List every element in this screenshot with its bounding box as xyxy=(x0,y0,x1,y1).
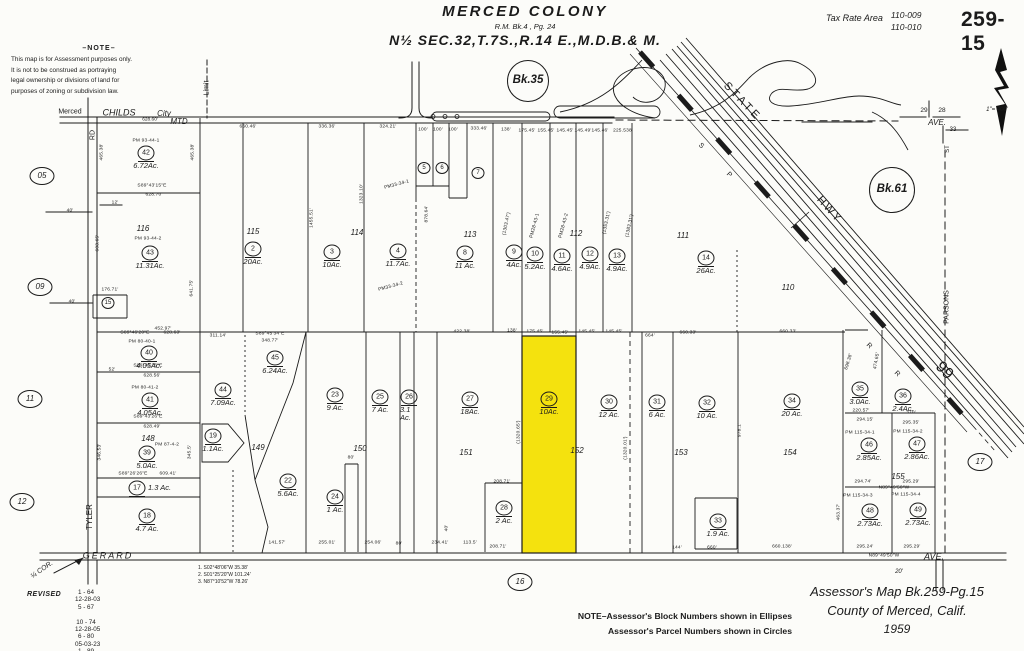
dimension-label: (1383.31') xyxy=(626,214,636,238)
gerard-ave-label: GERARD xyxy=(83,552,134,561)
legend-note-line: NOTE–Assessor's Block Numbers shown in E… xyxy=(400,609,792,624)
dimension-label: 348.77' xyxy=(262,340,279,345)
dimension-label: 346.53' xyxy=(99,444,104,461)
dimension-label: (1320.01') xyxy=(625,436,630,459)
bearing-table-row: 2. S01°25'20"W 101.24' xyxy=(198,572,251,579)
map-title: MERCED COLONY xyxy=(389,3,661,20)
dimension-label: 295.24' xyxy=(857,546,874,551)
tyler-rd-label: TYLER xyxy=(86,504,94,530)
parcel-acreage-23: 9 Ac. xyxy=(327,404,344,412)
parcel-number-40: 40 xyxy=(141,346,158,361)
dimension-label: 628.63' xyxy=(164,332,181,337)
parcel-acreage-17: 1.3 Ac. xyxy=(148,484,171,492)
dimension-label: 295.35' xyxy=(903,422,920,427)
dimension-label: PM33-34-2 xyxy=(378,282,404,293)
city-limit-label: Limit xyxy=(204,81,211,96)
bearing-table-row: 1. S02°48'06"W 35.38' xyxy=(198,565,251,572)
bearing-table-row: 3. N87°10'52"W 78.26' xyxy=(198,579,251,586)
parcel-number-34: 34 xyxy=(784,394,801,409)
dimension-label: PM 115-34-2 xyxy=(893,431,923,436)
dimension-label: S89°45'34"E xyxy=(255,333,284,338)
parcel-number-15: 15 xyxy=(102,297,115,309)
dimension-label: 145.49' xyxy=(575,130,592,135)
parcel-acreage-30: 12 Ac. xyxy=(599,411,620,419)
block-number-label: 113 xyxy=(464,231,477,239)
railroad-letter: S xyxy=(697,142,705,150)
parcel-number-44: 44 xyxy=(215,383,232,398)
block-number-label: 149 xyxy=(251,444,264,452)
dimension-label: 664' xyxy=(645,335,655,340)
block-number-label: 152 xyxy=(570,447,583,455)
dimension-label: 138' xyxy=(501,129,511,134)
assessor-stamp: Assessor's Map Bk.259-Pg.15 County of Me… xyxy=(772,582,1022,638)
parcel-number-29: 29 xyxy=(541,392,558,407)
dimension-label: 234.41' xyxy=(432,542,449,547)
parcel-divider-line xyxy=(129,496,145,497)
block-ellipse-11: 11 xyxy=(18,390,43,408)
parcel-number-32: 32 xyxy=(699,396,716,411)
adjacent-book-ref: Bk.61 xyxy=(869,167,915,213)
parcel-acreage-22: 5.6Ac. xyxy=(277,490,298,498)
revision-number: 1 - 64 xyxy=(69,589,103,596)
mtd-label: MTD xyxy=(170,118,187,126)
dimension-label: 138' xyxy=(507,330,517,335)
parcel-number-2: 2 xyxy=(245,242,262,257)
parcel-acreage-45: 6.24Ac. xyxy=(262,367,287,375)
block-ellipse-17: 17 xyxy=(968,453,993,471)
dimension-label: 208.71' xyxy=(490,546,507,551)
dimension-label: 176.71' xyxy=(102,289,119,294)
section-number-label: 29 xyxy=(920,108,927,115)
parcel-number-5: 5 xyxy=(418,162,431,174)
parcel-acreage-24: 1 Ac. xyxy=(327,506,344,514)
dimension-label: 1323.10' xyxy=(361,184,366,204)
parcel-number-31: 31 xyxy=(649,395,666,410)
parcel-acreage-43: 11.31Ac. xyxy=(135,262,164,270)
dimension-label: 311.14' xyxy=(210,335,227,340)
scale-label: 1"= 400' xyxy=(986,107,1008,113)
dimension-label: 145.45' xyxy=(557,130,574,135)
dimension-label: 100' xyxy=(433,129,443,134)
parcel-acreage-29: 10Ac. xyxy=(539,408,558,416)
railroad-letter: R xyxy=(865,342,874,351)
parcel-acreage-28: 2 Ac. xyxy=(496,517,513,525)
block-ellipse-12: 12 xyxy=(10,493,35,511)
legend-note: NOTE–Assessor's Block Numbers shown in E… xyxy=(400,609,792,638)
dimension-label: 465.38' xyxy=(101,144,106,161)
dimension-label: 208.71' xyxy=(494,481,511,486)
dimension-label: 465.38' xyxy=(192,144,197,161)
dimension-label: 145.45' xyxy=(606,331,623,336)
dimension-label: PM 115-34-3 xyxy=(843,495,873,500)
dimension-label: 660.138' xyxy=(772,546,792,551)
dimension-label: PM 93-44-1 xyxy=(132,140,159,145)
dimension-label: 336.36' xyxy=(319,126,336,131)
parcel-number-14: 14 xyxy=(698,251,715,266)
dimension-label: 609.41' xyxy=(160,473,177,478)
childs-ave-label: CHILDS xyxy=(102,109,135,118)
assessor-stamp-line: County of Merced, Calif. xyxy=(772,601,1022,620)
st-label: ST xyxy=(945,145,951,153)
dim-20ft: 20' xyxy=(895,569,903,575)
parcel-acreage-12: 4.9Ac. xyxy=(579,263,600,271)
revision-date: 12-28-03 xyxy=(75,596,119,603)
parcel-acreage-19: 1.1Ac. xyxy=(202,445,223,453)
revision-entry: 1 - 6412-28-03 xyxy=(69,589,119,604)
dimension-label: 660' xyxy=(707,547,717,552)
parcel-number-43: 43 xyxy=(142,246,159,261)
revision-entry: 5 - 67 xyxy=(69,604,119,619)
map-title-block: MERCED COLONY R.M. Bk.4 , Pg. 24 N½ SEC.… xyxy=(389,3,661,48)
parcel-number-13: 13 xyxy=(609,249,626,264)
dimension-label: (1303.47') xyxy=(503,212,513,236)
parcel-acreage-31: 6 Ac. xyxy=(649,411,666,419)
dimension-label: (1320.65') xyxy=(518,420,523,443)
parcel-acreage-9: 4Ac. xyxy=(506,261,521,269)
dimension-label: PM 115-34-1 xyxy=(845,432,875,437)
dimension-label: 474.65' xyxy=(874,352,882,370)
assessment-note-line: legal ownership or divisions of land for xyxy=(11,76,187,87)
tax-rate-code: 110-010 xyxy=(891,21,922,33)
block-number-label: 115 xyxy=(247,228,260,236)
dimension-label: 100' xyxy=(448,129,458,134)
tax-rate-area-label: Tax Rate Area xyxy=(826,13,883,23)
dimension-label: (1353.31') xyxy=(603,211,613,235)
block-number-label: 111 xyxy=(677,232,689,240)
map-subtitle-section: N½ SEC.32,T.7S.,R.14 E.,M.D.B.& M. xyxy=(389,32,661,48)
block-number-label: 155 xyxy=(891,473,904,481)
assessor-stamp-line: 1959 xyxy=(772,620,1022,638)
parcel-acreage-26: 3.1 Ac. xyxy=(400,406,418,421)
section-number-label: 28 xyxy=(938,108,945,115)
dimension-label: 40' xyxy=(67,210,74,215)
parcel-number-25: 25 xyxy=(372,390,389,405)
parcel-number-33: 33 xyxy=(710,514,727,529)
parcel-acreage-35: 3.0Ac. xyxy=(849,398,870,406)
dimension-label: 294.74' xyxy=(855,481,872,486)
parcel-acreage-13: 4.9Ac. xyxy=(606,265,627,273)
dimension-label: 145.46' xyxy=(592,130,609,135)
parcel-acreage-32: 10 Ac. xyxy=(697,412,718,420)
parcel-number-8: 8 xyxy=(457,246,474,261)
dimension-label: 144' xyxy=(672,547,682,552)
ave-label-bottom: AVE. xyxy=(924,553,944,562)
dimension-label: PM33-34-1 xyxy=(384,180,410,191)
block-number-label: 148 xyxy=(141,435,154,443)
block-number-label: 110 xyxy=(782,284,795,292)
parcel-acreage-3: 10Ac. xyxy=(322,261,341,269)
parcel-acreage-42: 6.72Ac. xyxy=(133,162,158,170)
dimension-label: 254.06' xyxy=(365,542,382,547)
parcel-number-11: 11 xyxy=(554,249,571,264)
dimension-label: 422.38' xyxy=(454,331,471,336)
block-number-label: 153 xyxy=(674,449,687,457)
dimension-label: 878.64' xyxy=(426,206,431,223)
dimension-label: 80' xyxy=(348,457,355,462)
parcel-acreage-2: 20Ac. xyxy=(243,258,262,266)
state-hwy-label-hwy: HWY xyxy=(814,195,843,226)
adjacent-book-ref: Bk.35 xyxy=(507,60,549,102)
dimension-label: 345.5' xyxy=(189,445,194,459)
parcel-number-4: 4 xyxy=(390,244,407,259)
dimension-label: 40' xyxy=(69,301,76,306)
dimension-label: 155.45' xyxy=(552,332,569,337)
dimension-label: 641.75' xyxy=(191,280,196,297)
dimension-label: 295.29' xyxy=(904,546,921,551)
state-hwy-label-99: 99 xyxy=(932,359,956,383)
parcel-number-17: 17 xyxy=(129,481,146,496)
parcel-acreage-8: 11 Ac. xyxy=(455,262,475,270)
dimension-label: 978.1' xyxy=(739,423,744,437)
assessor-stamp-line: Assessor's Map Bk.259-Pg.15 xyxy=(772,582,1022,601)
revision-number: 10 - 74 xyxy=(69,619,103,626)
parcel-acreage-39: 5.0Ac. xyxy=(136,462,157,470)
parcel-acreage-46: 2.85Ac. xyxy=(856,454,881,462)
parcel-number-36: 36 xyxy=(895,389,912,404)
dimension-label: S89°43'15"E xyxy=(137,185,166,190)
dimension-label: PM28-43-1 xyxy=(530,213,541,239)
revision-entry: 10 - 7412-28-05 xyxy=(69,619,119,634)
dimension-label: 52' xyxy=(109,369,116,374)
parcel-number-45: 45 xyxy=(267,351,284,366)
parcel-number-28: 28 xyxy=(496,501,513,516)
dimension-label: N89°49'50"W xyxy=(869,555,900,560)
parcel-number-49: 49 xyxy=(910,503,927,518)
parcel-number-39: 39 xyxy=(139,446,156,461)
state-hwy-label-state: STATE xyxy=(721,81,763,124)
tax-rate-code: 110-009 xyxy=(891,9,922,21)
dimension-label: PM 115-34-4 xyxy=(891,494,921,499)
revision-number: 5 - 67 xyxy=(69,604,103,611)
parcel-number-6: 6 xyxy=(436,162,449,174)
merced-label: Merced xyxy=(58,109,81,116)
dimension-label: 294.15' xyxy=(857,419,874,424)
block-ellipse-05: 05 xyxy=(30,167,55,185)
map-label-layer: 660.46'336.36'324.21'100'100'100'333.46'… xyxy=(0,0,1024,651)
parcel-number-30: 30 xyxy=(601,395,618,410)
dimension-label: PM 80-40-1 xyxy=(128,341,155,346)
parcel-number-27: 27 xyxy=(462,392,479,407)
dimension-label: S89°26'26"E xyxy=(118,473,147,478)
section-number-label: 33 xyxy=(950,127,957,133)
bearing-table: 1. S02°48'06"W 35.38'2. S01°25'20"W 101.… xyxy=(198,565,251,586)
block-number-label: 150 xyxy=(353,445,366,453)
parcel-acreage-49: 2.73Ac. xyxy=(905,519,930,527)
railroad-letter: R xyxy=(893,370,902,379)
dim-childs: 628.60' xyxy=(142,119,158,124)
block-number-label: 114 xyxy=(351,229,364,237)
map-subtitle-recorded: R.M. Bk.4 , Pg. 24 xyxy=(389,22,661,31)
parcel-acreage-47: 2.86Ac. xyxy=(904,453,929,461)
dimension-label: PM 93-44-2 xyxy=(134,238,161,243)
dimension-label: 1455.51' xyxy=(311,208,316,228)
dimension-label: 175.45' xyxy=(519,130,536,135)
parcel-number-47: 47 xyxy=(909,437,926,452)
parcel-acreage-33: 1.9 Ac. xyxy=(706,530,729,538)
parcel-number-3: 3 xyxy=(324,245,341,260)
dimension-label: 100' xyxy=(418,129,428,134)
parcel-number-46: 46 xyxy=(861,438,878,453)
parcel-acreage-4: 11.7Ac. xyxy=(386,260,411,268)
dimension-label: S89°46'20"E xyxy=(120,332,149,337)
dimension-label: 660.46' xyxy=(240,126,257,131)
assessment-note-line: purposes of zoning or subdivision law. xyxy=(11,87,187,98)
parcel-acreage-18: 4.7 Ac. xyxy=(135,525,158,533)
revision-number: 6 - 80 xyxy=(69,633,103,640)
revision-date: 05-03-23 xyxy=(75,641,119,648)
parcel-number-26: 26 xyxy=(401,390,418,405)
parcel-number-24: 24 xyxy=(327,490,344,505)
dimension-label: 225.538' xyxy=(613,130,633,135)
parcel-acreage-14: 26Ac. xyxy=(696,267,715,275)
dimension-label: 628.49' xyxy=(144,426,161,431)
parcel-number-12: 12 xyxy=(582,247,599,262)
dimension-label: 698.38' xyxy=(845,353,855,371)
dimension-label: PM 87-4-2 xyxy=(155,444,179,449)
quarter-corner-label: ¼ COR. xyxy=(30,560,55,580)
ave-label-top: AVE. xyxy=(928,119,946,127)
dimension-label: 175.45' xyxy=(527,331,544,336)
dimension-label: 660.33' xyxy=(680,332,697,337)
parcel-acreage-48: 2.73Ac. xyxy=(857,520,882,528)
dimension-label: N89°49'50"W xyxy=(879,487,910,492)
dimension-label: 463.37' xyxy=(838,504,843,521)
tax-rate-area-block: Tax Rate Area 110-009 110-010 xyxy=(826,9,921,33)
assessment-note-line: This map is for Assessment purposes only… xyxy=(11,55,187,66)
block-number-label: 112 xyxy=(570,230,583,238)
parcel-number-22: 22 xyxy=(280,474,297,489)
dimension-label: 155.45' xyxy=(538,130,555,135)
dimension-label: 145.45' xyxy=(579,331,596,336)
parcel-number-48: 48 xyxy=(862,504,879,519)
dimension-label: PM 80-41-2 xyxy=(131,387,158,392)
parcel-acreage-41: 4.05Ac. xyxy=(137,409,162,417)
parcel-number-18: 18 xyxy=(139,509,156,524)
dimension-label: 333.46' xyxy=(471,128,488,133)
parcel-number-23: 23 xyxy=(327,388,344,403)
parcel-acreage-11: 4.6Ac. xyxy=(551,265,572,273)
parcel-number-41: 41 xyxy=(142,393,159,408)
sheet-number: 259-15 xyxy=(961,8,1024,56)
block-ellipse-09: 09 xyxy=(28,278,53,296)
dimension-label: 113.5' xyxy=(463,542,477,547)
assessment-note-line: It is not to be construed as portraying xyxy=(11,66,187,77)
revision-date: 12-28-05 xyxy=(75,626,119,633)
block-number-label: 151 xyxy=(459,449,472,457)
dimension-label: 628.56' xyxy=(144,375,161,380)
legend-note-line: Assessor's Parcel Numbers shown in Circl… xyxy=(400,624,792,639)
revision-label: REVISED xyxy=(27,591,61,598)
parcel-acreage-27: 18Ac. xyxy=(460,408,479,416)
dimension-label: 141.57' xyxy=(269,542,286,547)
dimension-label: 628.70' xyxy=(146,194,163,199)
railroad-letter: P xyxy=(725,171,733,179)
parcel-number-42: 42 xyxy=(138,146,155,161)
dimension-label: 660.33' xyxy=(780,331,797,336)
assessment-note: –NOTE– This map is for Assessment purpos… xyxy=(11,45,187,97)
parcel-acreage-25: 7 Ac. xyxy=(372,406,389,414)
parcel-number-19: 19 xyxy=(205,429,222,444)
dimension-label: 80' xyxy=(396,543,403,548)
dimension-label: 220.57' xyxy=(853,410,870,415)
block-number-label: 154 xyxy=(783,449,796,457)
parcel-number-35: 35 xyxy=(852,382,869,397)
revision-entry: 6 - 8005-03-23 xyxy=(69,633,119,648)
assessor-map-page: 660.46'336.36'324.21'100'100'100'333.46'… xyxy=(0,0,1024,651)
parcel-acreage-34: 20 Ac. xyxy=(782,410,803,418)
dimension-label: 324.21' xyxy=(380,126,397,131)
city-label: City xyxy=(157,110,171,118)
parcel-acreage-44: 7.09Ac. xyxy=(210,399,235,407)
parcel-number-10: 10 xyxy=(527,247,544,262)
parsons-st-label: PARSONS xyxy=(944,290,951,324)
parcel-acreage-40: 4.05Ac. xyxy=(136,362,161,370)
parcel-acreage-36: 2.4Ac. xyxy=(892,405,913,413)
dimension-label: 12' xyxy=(112,202,119,207)
parcel-number-9: 9 xyxy=(506,245,523,260)
block-ellipse-16: 16 xyxy=(508,573,533,591)
assessment-note-heading: –NOTE– xyxy=(11,45,187,52)
dimension-label: 603.65' xyxy=(97,235,102,252)
dimension-label: 40' xyxy=(446,525,451,532)
dimension-label: 255.01' xyxy=(319,542,336,547)
parcel-number-7: 7 xyxy=(472,167,485,179)
rd-label: RD xyxy=(90,130,97,140)
parcel-acreage-10: 5.2Ac. xyxy=(524,263,545,271)
block-number-label: 116 xyxy=(137,225,150,233)
